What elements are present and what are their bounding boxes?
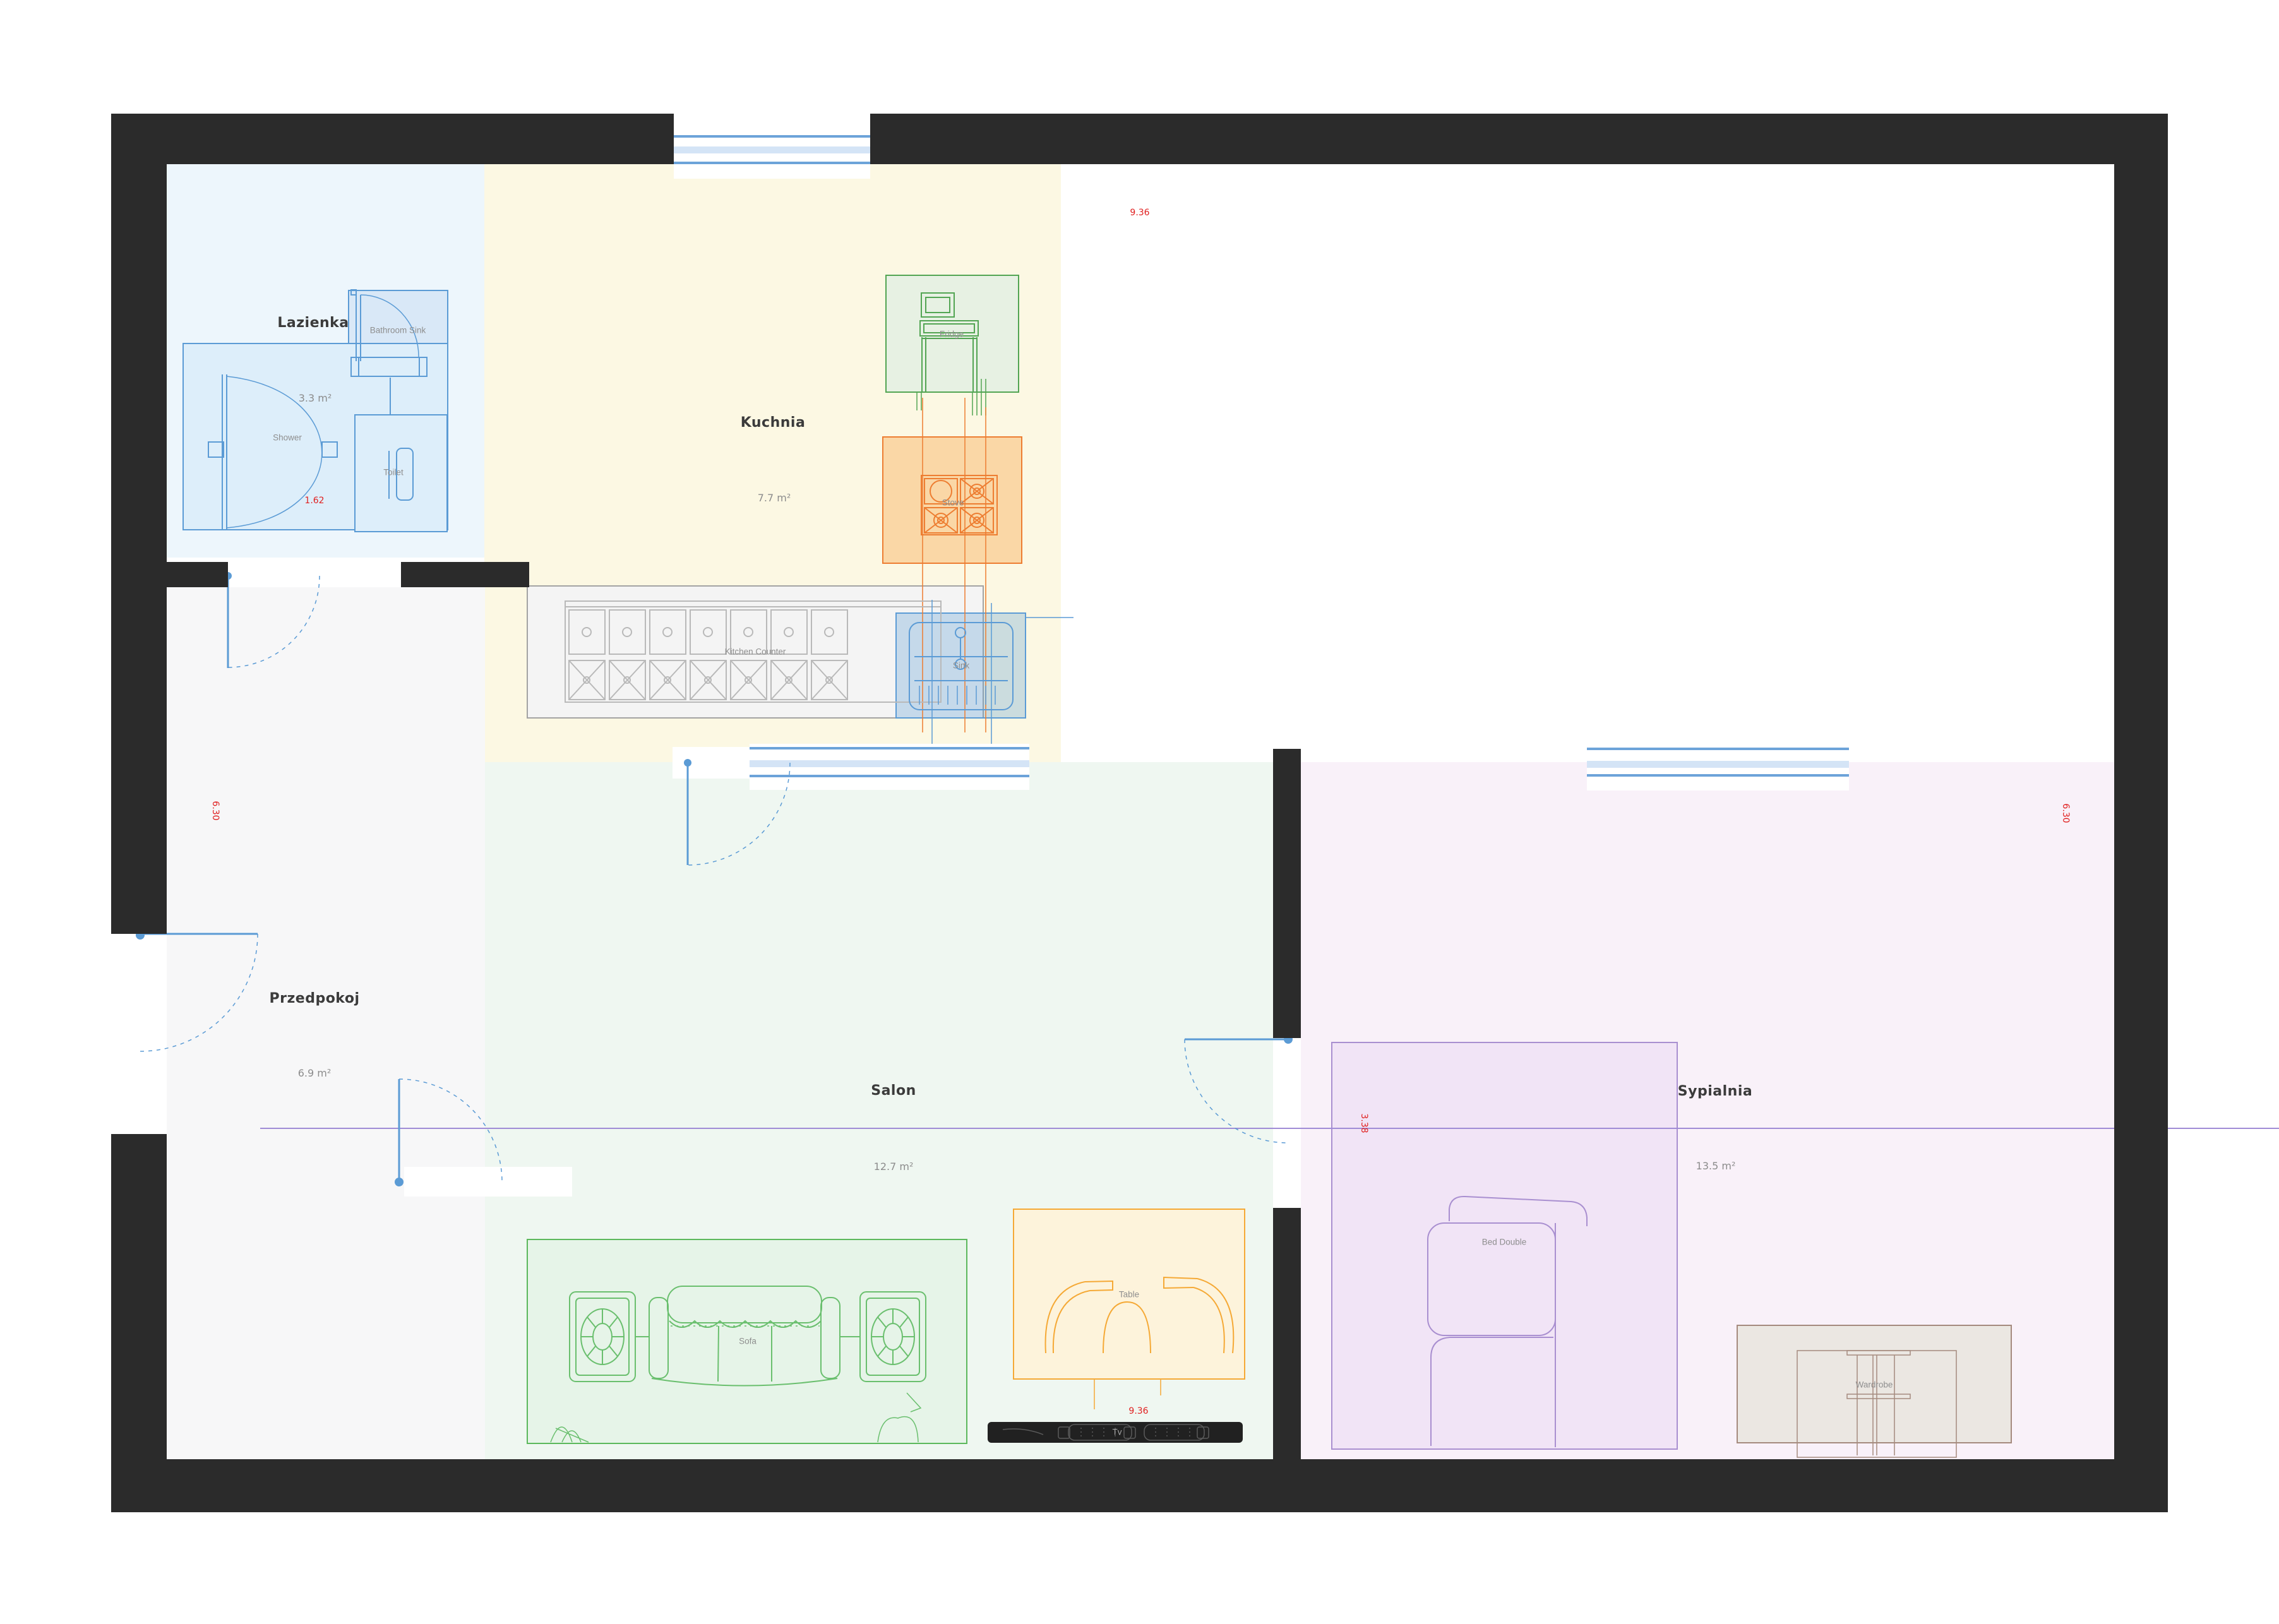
dim-right-height: 6.30 — [2061, 803, 2070, 823]
label-table: Table — [1119, 1290, 1139, 1299]
label-tv: Tv — [1113, 1428, 1122, 1436]
wall-bathroom-left — [111, 562, 228, 587]
label-toilet: Toilet — [383, 468, 404, 477]
door-opening-marker — [404, 1167, 572, 1197]
wall-right — [2114, 114, 2168, 1512]
wall-top-right — [870, 114, 2168, 164]
dim-top-width: 9.36 — [1130, 208, 1149, 217]
label-fridge: Fridge — [940, 330, 964, 338]
wall-left-lower — [111, 1134, 167, 1512]
room-area-sypialnia: 13.5 m² — [1696, 1161, 1736, 1171]
label-stove: Stove — [942, 498, 964, 507]
plan-lines-overlay — [0, 0, 2279, 1624]
door-salon-sypialnia[interactable] — [1185, 1035, 1293, 1143]
room-label-przedpokoj: Przedpokoj — [269, 992, 359, 1006]
room-label-kuchnia: Kuchnia — [741, 416, 806, 430]
wall-mid-lower — [1273, 1208, 1301, 1459]
dim-bed-width: 3.38 — [1360, 1113, 1368, 1133]
label-sink: Sink — [953, 661, 969, 670]
label-wardrobe: Wardrobe — [1856, 1380, 1893, 1389]
wall-top-left — [111, 114, 674, 164]
dim-bathroom-door: 1.62 — [304, 496, 324, 505]
room-area-kuchnia: 7.7 m² — [758, 493, 791, 503]
wall-left-upper — [111, 114, 167, 934]
stove-icon — [921, 398, 997, 732]
wall-bottom — [111, 1459, 2168, 1512]
wall-bathroom-right — [401, 562, 529, 587]
room-area-przedpokoj: 6.9 m² — [298, 1068, 332, 1078]
door-bathroom[interactable] — [224, 572, 320, 668]
room-area-salon: 12.7 m² — [874, 1162, 914, 1172]
sink-icon — [909, 600, 1074, 744]
bed-icon — [1428, 1197, 1587, 1447]
fridge-icon — [917, 293, 986, 415]
wall-mid-upper — [1273, 749, 1301, 1038]
label-kitchen-counter: Kitchen Counter — [725, 647, 786, 656]
tv-icon — [1003, 1424, 1209, 1440]
floor-plan: Lazienka 3.3 m² Kuchnia 7.7 m² Przedpoko… — [0, 0, 2279, 1624]
label-shower: Shower — [273, 433, 302, 442]
door-entry[interactable] — [136, 931, 258, 1051]
table-chairs-icon — [1046, 1277, 1234, 1409]
bathroom-sink-icon — [351, 290, 427, 415]
sofa-icon — [551, 1286, 926, 1442]
wardrobe-icon — [1797, 1351, 1956, 1457]
room-label-sypialnia: Sypialnia — [1678, 1085, 1752, 1099]
room-area-lazienka: 3.3 m² — [299, 393, 332, 403]
label-sofa: Sofa — [739, 1337, 757, 1346]
label-bathroom-sink: Bathroom Sink — [370, 326, 426, 335]
room-label-lazienka: Lazienka — [277, 316, 349, 330]
dim-left-height: 6.30 — [211, 801, 220, 820]
label-bed: Bed Double — [1482, 1238, 1527, 1246]
dim-bottom-width: 9.36 — [1128, 1407, 1148, 1416]
room-label-salon: Salon — [871, 1084, 916, 1098]
